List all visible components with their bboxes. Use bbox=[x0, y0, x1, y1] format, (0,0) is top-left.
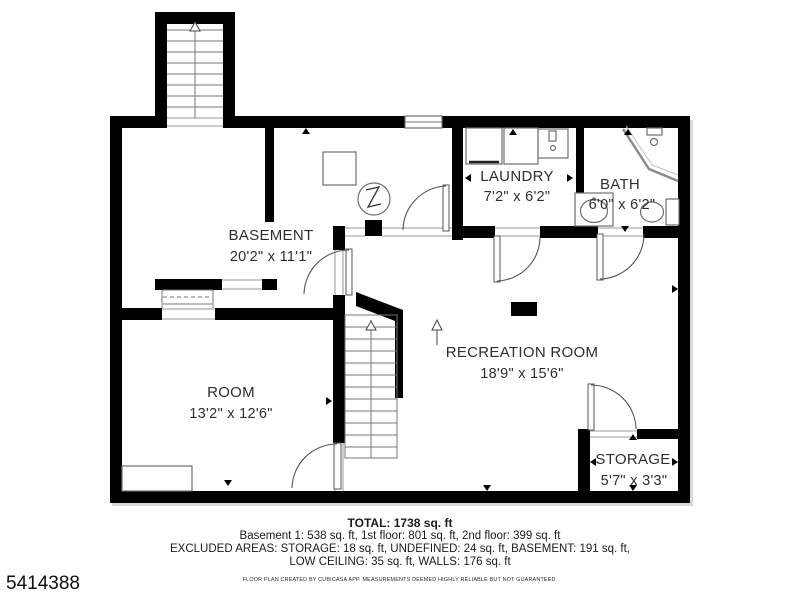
room-label-basement: BASEMENT bbox=[229, 227, 314, 244]
water-heater-icon bbox=[358, 183, 390, 215]
excluded-areas-line-1: EXCLUDED AREAS: STORAGE: 18 sq. ft, UNDE… bbox=[0, 543, 800, 556]
excluded-areas-line-2: LOW CEILING: 35 sq. ft, WALLS: 176 sq. f… bbox=[0, 556, 800, 569]
direction-arrow-icon bbox=[432, 320, 442, 345]
floor-plan-drawing: BASEMENT 20'2" x 11'1" LAUNDRY 7'2" x 6'… bbox=[0, 0, 800, 600]
listing-id: 5414388 bbox=[6, 573, 80, 595]
disclaimer-text: FLOOR PLAN CREATED BY CUBICASA APP. MEAS… bbox=[0, 574, 800, 587]
washer-icon bbox=[466, 128, 502, 164]
dryer-icon bbox=[504, 128, 538, 164]
door-room-stairs bbox=[292, 443, 341, 489]
support-column bbox=[511, 302, 537, 316]
area-summary: TOTAL: 1738 sq. ft Basement 1: 538 sq. f… bbox=[0, 517, 800, 587]
door-storage bbox=[588, 384, 636, 430]
room-dims-storage: 5'7" x 3'3" bbox=[601, 473, 668, 489]
room-label-laundry: LAUNDRY bbox=[480, 168, 554, 185]
room-label-storage: STORAGE bbox=[595, 451, 670, 468]
furnace-icon bbox=[323, 152, 356, 185]
closet-rod-icon bbox=[162, 290, 213, 308]
door-bath bbox=[597, 234, 644, 280]
openings-layer bbox=[162, 118, 643, 491]
room-label-bath: BATH bbox=[600, 176, 640, 193]
door-utility bbox=[403, 185, 449, 231]
room-dims-basement: 20'2" x 11'1" bbox=[230, 249, 312, 265]
counter-icon bbox=[122, 466, 192, 491]
laundry-sink-icon bbox=[538, 129, 568, 158]
room-dims-recreation: 18'9" x 15'6" bbox=[480, 366, 563, 382]
interior-stairs-up-icon bbox=[345, 315, 397, 458]
door-laundry bbox=[494, 236, 540, 282]
window-icon bbox=[405, 116, 442, 128]
room-dims-bath: 6'0" x 6'2" bbox=[589, 197, 656, 213]
exterior-stairs-up-icon bbox=[167, 22, 223, 118]
room-dims-laundry: 7'2" x 6'2" bbox=[484, 189, 551, 205]
floor-plan-page: BASEMENT 20'2" x 11'1" LAUNDRY 7'2" x 6'… bbox=[0, 0, 800, 600]
room-dims-room: 13'2" x 12'6" bbox=[189, 406, 272, 422]
floors-area-line: Basement 1: 538 sq. ft, 1st floor: 801 s… bbox=[0, 530, 800, 543]
room-label-room: ROOM bbox=[207, 384, 255, 401]
room-label-recreation: RECREATION ROOM bbox=[446, 344, 599, 361]
total-area-line: TOTAL: 1738 sq. ft bbox=[0, 517, 800, 530]
